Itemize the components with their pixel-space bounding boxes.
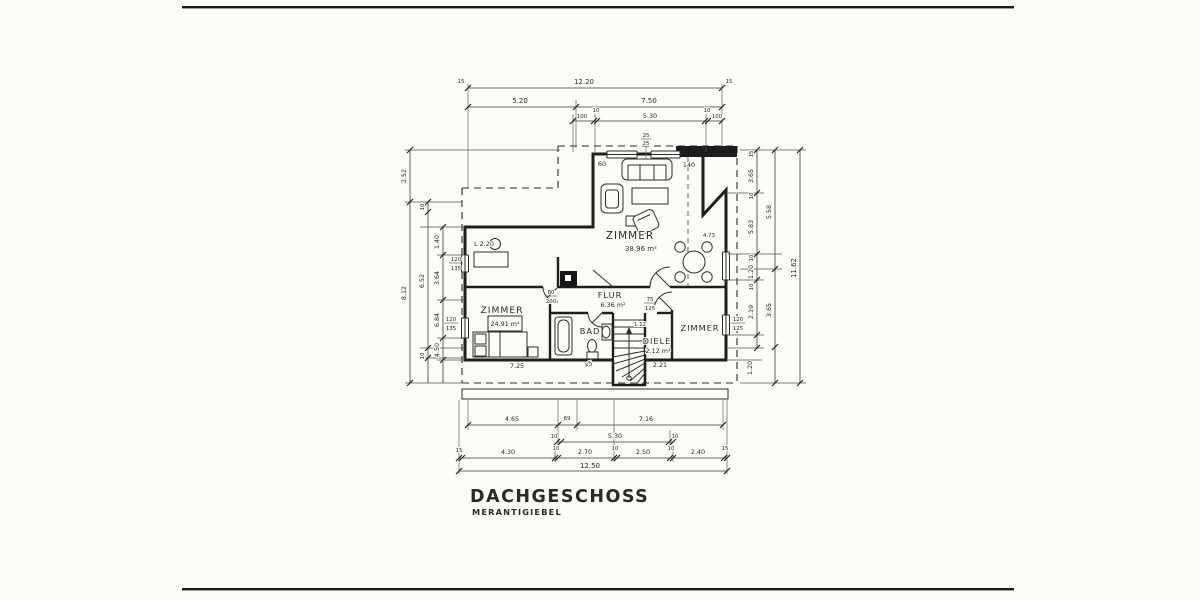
dim-label: 3.64 <box>433 271 441 285</box>
stairs <box>613 320 645 384</box>
dim-label: 2.40 <box>691 448 705 456</box>
eaves-strip <box>462 389 728 399</box>
window-height: 135 <box>451 266 461 272</box>
dim-label: 15 <box>726 79 733 85</box>
knee-wall-height-right: 140 <box>683 161 695 169</box>
dim-label: 4.50 <box>433 343 441 357</box>
armchair-1 <box>601 184 623 213</box>
window-top-1 <box>607 151 637 158</box>
dim-label: 5.58 <box>765 205 773 219</box>
room-area-flur: 6.36 m² <box>600 301 625 309</box>
dim-label: 1.40 <box>433 235 441 249</box>
door-label-diele: 75 125 <box>644 297 656 312</box>
window-left-bottom <box>462 318 469 338</box>
window-height: 135 <box>446 326 456 332</box>
coffee-table <box>632 188 668 204</box>
dim-label: 10 <box>420 352 426 359</box>
dim-label: 1.20 <box>747 265 755 279</box>
dim-label: 10 <box>749 192 755 199</box>
room-name-zimmer-main: ZIMMER <box>606 230 654 242</box>
bathtub <box>555 317 572 355</box>
dim-label: 69 <box>564 416 571 422</box>
dim-label: 5.20 <box>512 97 528 105</box>
mark-right: 2.21 <box>653 361 667 369</box>
window-height: 125 <box>733 326 743 332</box>
dining-set <box>675 242 712 282</box>
room-name-diele: DIELE <box>643 336 672 346</box>
nightstand <box>528 347 538 357</box>
height-line-label: L 2.20 <box>474 240 494 248</box>
dim-label: 6.52 <box>418 274 426 288</box>
toilet <box>587 340 598 360</box>
window-width: 120 <box>446 317 457 323</box>
floorplan-drawing: 15 12.20 15 5.20 7.50 100 10 5.30 10 100… <box>0 0 1200 600</box>
knee-wall-height-left: 60 <box>598 160 606 168</box>
dim-label: 10 <box>668 446 675 452</box>
window-label-left-bottom: 120 135 <box>444 317 458 332</box>
dim-label: 10 <box>749 254 755 261</box>
chimney-width: 25 <box>643 133 650 139</box>
door-height: 125 <box>645 306 655 312</box>
dim-label: 10 <box>672 434 679 440</box>
window-label-left-top: 120 135 <box>449 257 463 272</box>
room-name-bad: BAD <box>580 326 601 336</box>
dim-label: 100 <box>577 114 588 120</box>
stair-note: 1.12 <box>634 322 646 328</box>
dim-label: 4.30 <box>501 448 515 456</box>
dim-label: 2.52 <box>400 169 408 183</box>
dim-label: 3.65 <box>765 303 773 317</box>
door-width: 75 <box>647 297 654 303</box>
corner-diagonal <box>593 270 613 287</box>
dim-label: 15 <box>749 151 755 158</box>
dim-label: 11.62 <box>790 258 798 278</box>
washbasin <box>602 324 612 340</box>
dim-label: 10 <box>553 446 560 452</box>
dim-label: 15 <box>722 446 729 452</box>
drawing-subtitle: MERANTIGIEBEL <box>472 507 562 517</box>
scan-artifact-top <box>182 6 1014 8</box>
door-height: 200 <box>546 299 557 305</box>
dim-label: 2.50 <box>636 448 650 456</box>
mark-left: 7.25 <box>510 362 524 370</box>
room-area-zimmer-left: 24.91 m² <box>490 320 520 328</box>
dim-label: 12.50 <box>580 462 600 470</box>
door-zimmer-right <box>654 292 672 310</box>
dimension-labels: 15 12.20 15 5.20 7.50 100 10 5.30 10 100… <box>400 78 798 470</box>
dim-label: 8.12 <box>400 286 408 300</box>
room-area-diele: 2.12 m² <box>645 347 670 355</box>
window-label-right: 120 125 <box>731 317 745 332</box>
dim-label: 7.16 <box>639 415 653 423</box>
dim-label: 5.83 <box>747 220 755 234</box>
dim-label: 5.30 <box>643 112 657 120</box>
dim-label: 10 <box>420 203 426 210</box>
door-zimmer-main <box>650 267 670 287</box>
roof-band <box>676 146 737 157</box>
window-width: 120 <box>451 257 462 263</box>
door-bad <box>588 313 602 327</box>
stair-arrow <box>626 327 632 334</box>
dim-label: 4.65 <box>505 415 519 423</box>
dim-label: 10 <box>704 108 711 114</box>
dim-label: 3.65 <box>747 169 755 183</box>
window-left-top <box>462 255 469 272</box>
dim-label: 10 <box>612 446 619 452</box>
dim-label: 10 <box>593 108 600 114</box>
dim-473: 4.73 <box>703 233 715 239</box>
room-name-zimmer-right: ZIMMER <box>680 323 719 333</box>
dim-label: 7.50 <box>641 97 657 105</box>
drawing-title: DACHGESCHOSS <box>470 487 649 507</box>
door-width: 80 <box>548 290 555 296</box>
bed <box>473 332 538 357</box>
window-right-bottom <box>723 315 730 335</box>
dim-label: 6.84 <box>433 313 441 327</box>
dim-label: 2.19 <box>747 305 755 319</box>
dim-label: 5.30 <box>608 432 622 440</box>
dim-label: 100 <box>712 114 723 120</box>
room-name-zimmer-left: ZIMMER <box>480 305 523 316</box>
dim-label: 2.70 <box>578 448 592 456</box>
dim-label: 15 <box>456 448 463 454</box>
room-area-zimmer-main: 38.96 m² <box>625 245 657 253</box>
dim-label: 12.20 <box>574 78 594 86</box>
window-top-2 <box>651 151 680 158</box>
dim-label: 15 <box>458 79 465 85</box>
title-block: DACHGESCHOSS MERANTIGIEBEL <box>470 487 649 517</box>
dim-label: 1.20 <box>746 361 754 375</box>
scan-artifact-bottom <box>182 588 1014 590</box>
chimney-flue <box>565 275 571 281</box>
window-width: 120 <box>733 317 744 323</box>
window-right-top <box>723 252 730 280</box>
dim-label: 10 <box>551 434 558 440</box>
room-name-flur: FLUR <box>598 290 623 300</box>
dim-label: 10 <box>749 283 755 290</box>
sofa <box>622 159 672 180</box>
